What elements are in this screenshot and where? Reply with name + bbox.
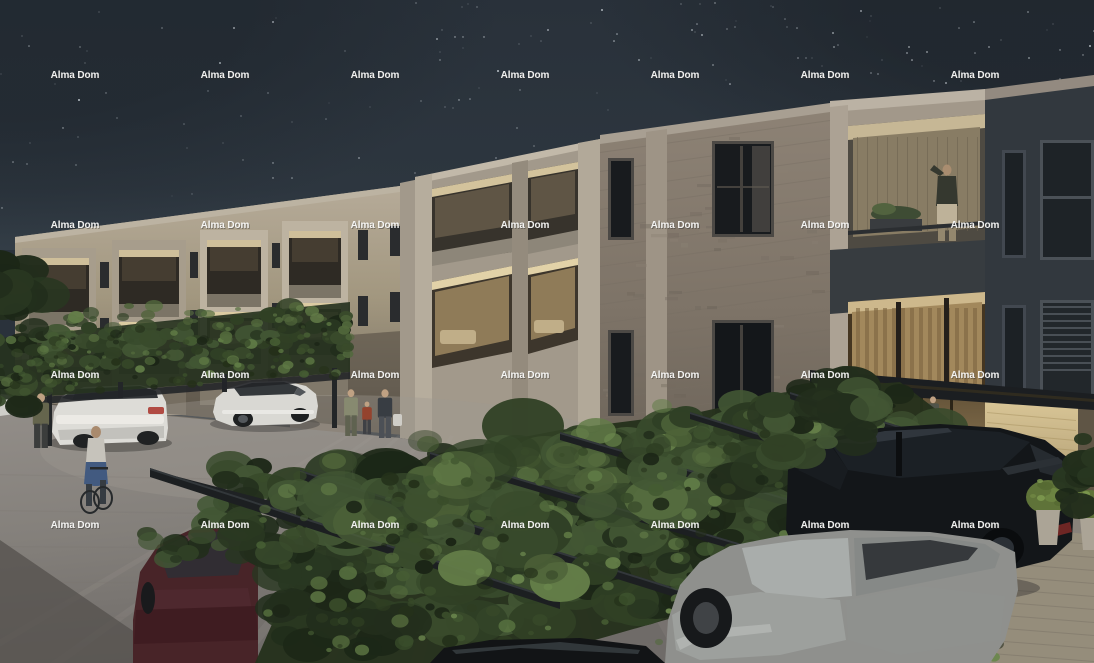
svg-text:Alma Dom: Alma Dom xyxy=(651,70,700,81)
svg-text:Alma Dom: Alma Dom xyxy=(201,370,250,381)
svg-text:Alma Dom: Alma Dom xyxy=(51,220,100,231)
svg-text:Alma Dom: Alma Dom xyxy=(501,370,550,381)
svg-text:Alma Dom: Alma Dom xyxy=(651,520,700,531)
svg-text:Alma Dom: Alma Dom xyxy=(951,370,1000,381)
svg-text:Alma Dom: Alma Dom xyxy=(501,220,550,231)
svg-text:Alma Dom: Alma Dom xyxy=(801,220,850,231)
svg-text:Alma Dom: Alma Dom xyxy=(801,370,850,381)
svg-text:Alma Dom: Alma Dom xyxy=(201,70,250,81)
svg-text:Alma Dom: Alma Dom xyxy=(951,520,1000,531)
svg-text:Alma Dom: Alma Dom xyxy=(351,370,400,381)
svg-text:Alma Dom: Alma Dom xyxy=(351,70,400,81)
svg-text:Alma Dom: Alma Dom xyxy=(201,220,250,231)
svg-text:Alma Dom: Alma Dom xyxy=(801,520,850,531)
svg-text:Alma Dom: Alma Dom xyxy=(351,520,400,531)
svg-text:Alma Dom: Alma Dom xyxy=(651,220,700,231)
svg-text:Alma Dom: Alma Dom xyxy=(951,220,1000,231)
svg-text:Alma Dom: Alma Dom xyxy=(51,70,100,81)
svg-text:Alma Dom: Alma Dom xyxy=(201,520,250,531)
svg-text:Alma Dom: Alma Dom xyxy=(501,520,550,531)
svg-text:Alma Dom: Alma Dom xyxy=(501,70,550,81)
svg-text:Alma Dom: Alma Dom xyxy=(351,220,400,231)
svg-text:Alma Dom: Alma Dom xyxy=(51,370,100,381)
svg-text:Alma Dom: Alma Dom xyxy=(651,370,700,381)
svg-text:Alma Dom: Alma Dom xyxy=(51,520,100,531)
svg-text:Alma Dom: Alma Dom xyxy=(801,70,850,81)
svg-text:Alma Dom: Alma Dom xyxy=(951,70,1000,81)
